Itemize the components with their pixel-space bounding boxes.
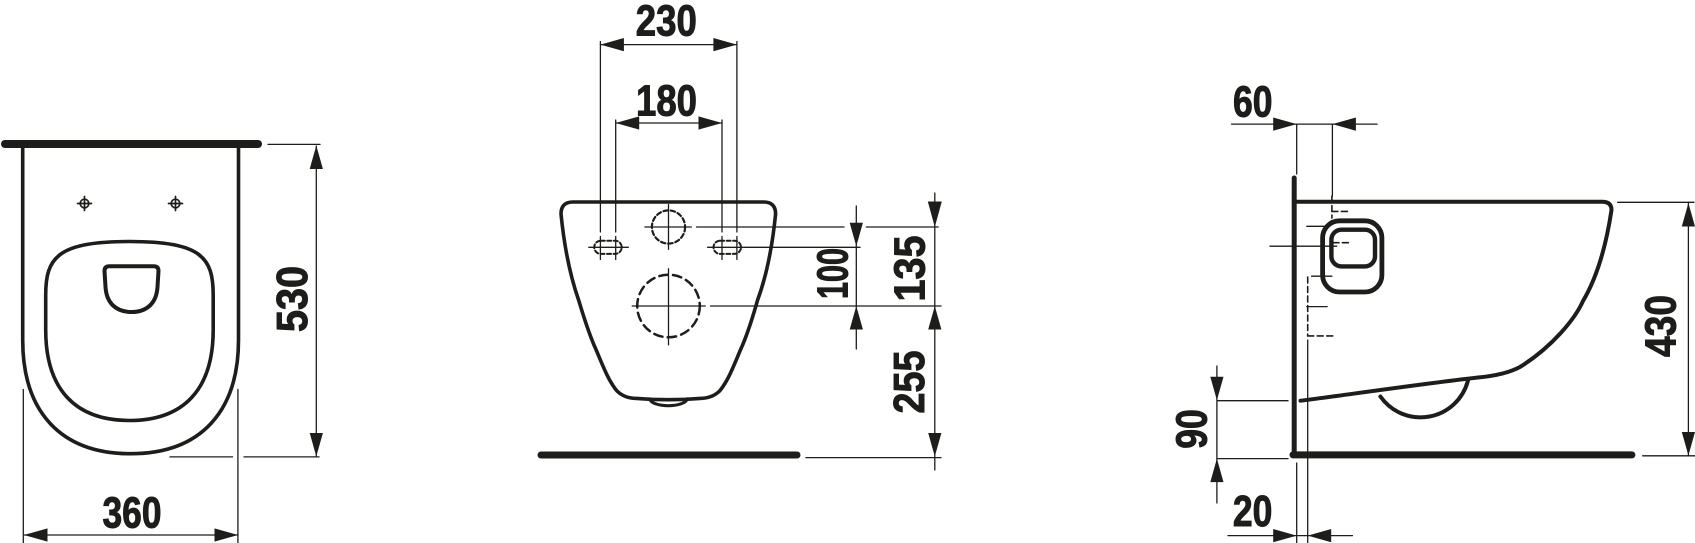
svg-text:100: 100: [809, 248, 858, 299]
svg-text:430: 430: [1637, 295, 1686, 357]
svg-text:360: 360: [103, 489, 162, 538]
svg-text:90: 90: [1167, 409, 1216, 449]
svg-text:230: 230: [636, 0, 697, 45]
svg-text:180: 180: [636, 77, 697, 126]
svg-text:135: 135: [886, 236, 935, 302]
svg-text:20: 20: [1233, 487, 1273, 536]
svg-text:255: 255: [885, 351, 934, 414]
svg-text:60: 60: [1233, 77, 1273, 126]
svg-text:530: 530: [268, 266, 317, 332]
